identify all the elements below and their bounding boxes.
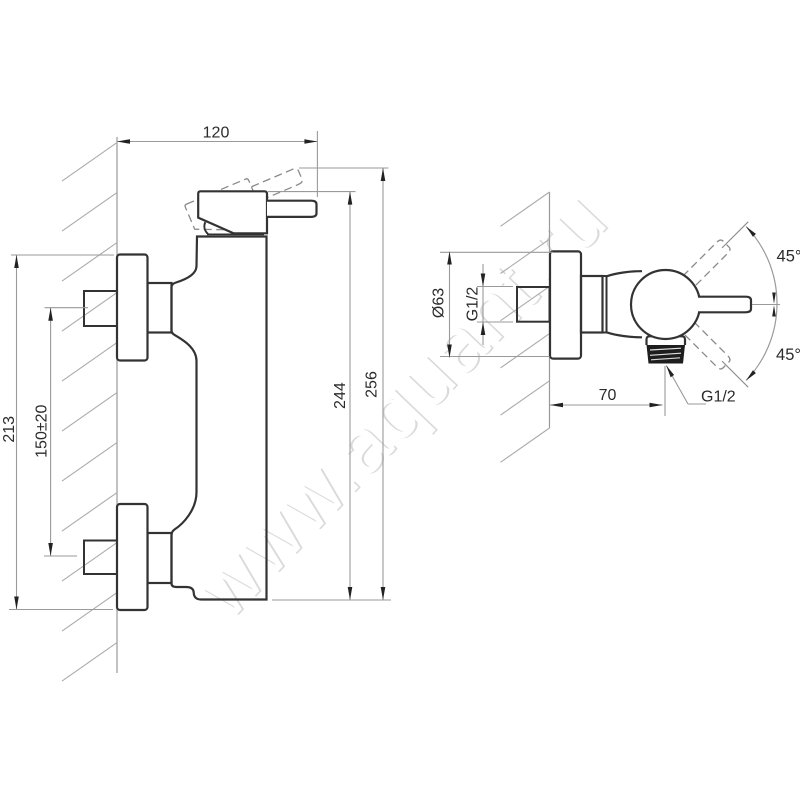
svg-text:G1/2: G1/2 [701, 389, 736, 406]
svg-text:70: 70 [599, 387, 617, 404]
svg-text:G1/2: G1/2 [464, 287, 481, 322]
svg-text:45°: 45° [777, 248, 800, 266]
svg-text:256: 256 [364, 371, 381, 398]
svg-text:120: 120 [203, 125, 230, 142]
svg-text:213: 213 [1, 416, 18, 443]
svg-text:244: 244 [332, 382, 349, 409]
svg-text:Ø63: Ø63 [430, 288, 447, 318]
svg-text:45°: 45° [776, 346, 800, 364]
svg-text:150±20: 150±20 [34, 404, 51, 457]
